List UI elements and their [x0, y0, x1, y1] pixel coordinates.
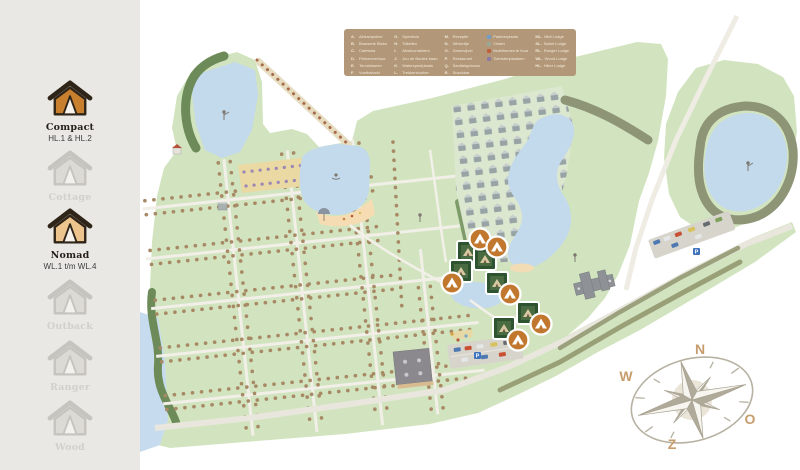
svg-text:P: P	[695, 250, 699, 256]
main-hall-building	[393, 348, 434, 389]
accommodation-sidebar: Compact HL.1 & HL.2 Cottage Nomad WL.1 t…	[0, 0, 140, 470]
accommodation-pin[interactable]	[442, 273, 463, 294]
legend-column-swatches: Parkeerplaats Chalet Mobilhomes te huur …	[487, 34, 528, 71]
accommodation-label: Wood	[55, 442, 85, 453]
compass-west-label: W	[619, 368, 633, 384]
accommodation-code: HL.1 & HL.2	[48, 134, 92, 143]
legend-swatch	[487, 35, 491, 39]
compass-east-label: O	[745, 411, 756, 427]
tent-icon	[47, 80, 93, 120]
sidebar-item-cottage[interactable]: Cottage	[0, 150, 140, 203]
accommodation-label: Cottage	[49, 192, 92, 203]
accommodation-label: Outback	[47, 321, 93, 332]
parking-sign: P	[693, 248, 700, 256]
legend-swatch	[487, 49, 491, 53]
sidebar-item-nomad[interactable]: Nomad WL.1 t/m WL.4	[0, 208, 140, 271]
accommodation-label: Nomad	[51, 250, 90, 261]
parking-sign: P	[474, 352, 481, 360]
map-legend: A.Airtrampoline B.Brasserie Bistro C.Caf…	[344, 29, 576, 76]
svg-text:P: P	[476, 354, 480, 360]
park-map: P P	[140, 0, 800, 470]
accommodation-label: Compact	[46, 122, 94, 133]
sanitary-hut	[218, 203, 227, 210]
tent-icon	[47, 340, 93, 380]
legend-swatch	[487, 42, 491, 46]
tent-icon	[47, 150, 93, 190]
sidebar-item-ranger[interactable]: Ranger	[0, 340, 140, 393]
legend-swatch	[487, 57, 491, 61]
tent-icon	[47, 279, 93, 319]
sidebar-item-compact[interactable]: Compact HL.1 & HL.2	[0, 80, 140, 143]
accommodation-pin[interactable]	[531, 314, 552, 335]
compass-south-label: Z	[668, 436, 677, 452]
legend-column-lodges: ML.Mini Lodge SL.Safari Lodge RL.Ranger …	[535, 34, 569, 71]
tent-icon	[47, 400, 93, 440]
tent-icon	[47, 208, 93, 248]
sidebar-item-outback[interactable]: Outback	[0, 279, 140, 332]
compass-north-label: N	[695, 341, 705, 357]
legend-column: M.Receptie N.Winkeltje O.Zwemvijver P.Re…	[445, 34, 481, 71]
accommodation-code: WL.1 t/m WL.4	[44, 262, 97, 271]
accommodation-label: Ranger	[50, 382, 90, 393]
sidebar-item-wood[interactable]: Wood	[0, 400, 140, 453]
compass-rose: N O Z W	[619, 341, 763, 457]
legend-column: A.Airtrampoline B.Brasserie Bistro C.Caf…	[351, 34, 387, 71]
accommodation-pin[interactable]	[508, 330, 529, 351]
legend-column: G.Speeltuin H.Toiletten I.Afvalcontainer…	[394, 34, 437, 71]
accommodation-pin[interactable]	[487, 237, 508, 258]
accommodation-pin[interactable]	[500, 284, 521, 305]
